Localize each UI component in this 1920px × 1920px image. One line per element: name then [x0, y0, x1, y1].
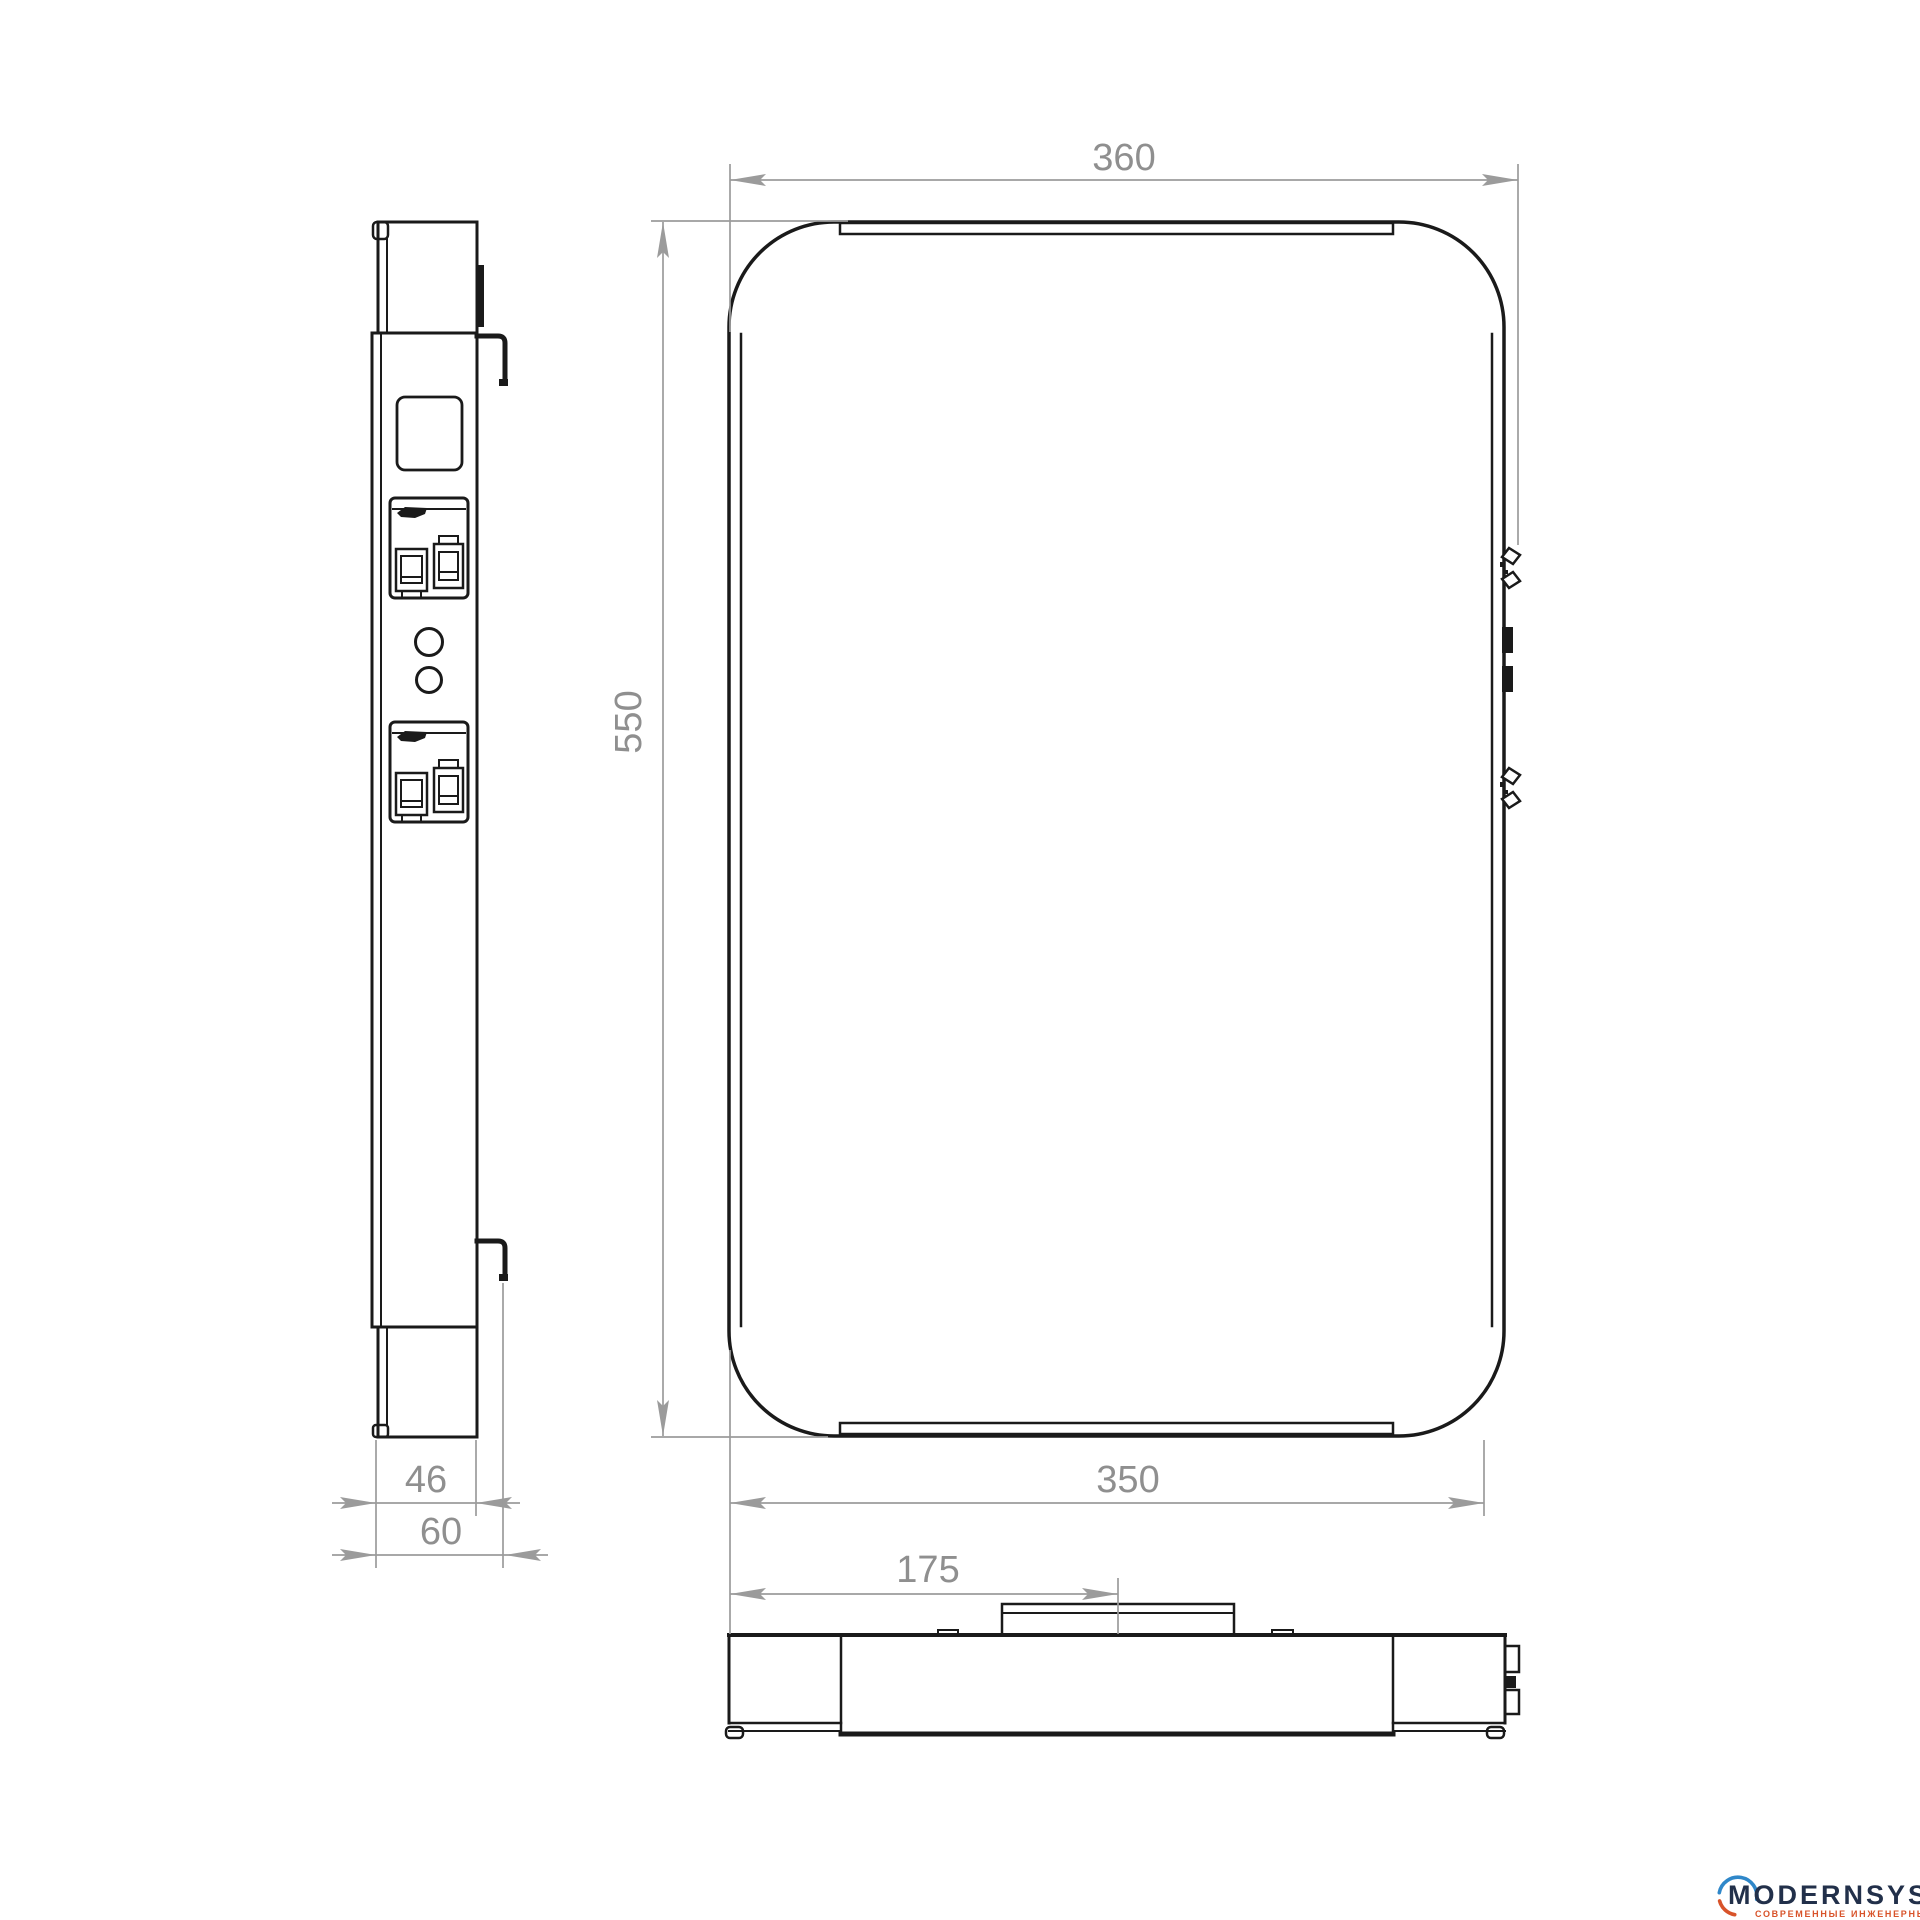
side-bottom-cap	[378, 1327, 477, 1437]
wall-hook-top	[477, 336, 508, 386]
dim-label-bottom-width: 350	[1096, 1459, 1159, 1501]
valve-knob-top	[416, 629, 443, 656]
side-top-cap	[378, 222, 477, 333]
front-view	[729, 222, 1520, 1436]
bottom-view-terminals	[1505, 1646, 1519, 1714]
dimension-175: 175	[730, 1549, 1118, 1634]
bottom-edge-strip	[840, 1423, 1393, 1434]
dim-label-center-offset: 175	[896, 1549, 959, 1591]
left-corner-nub	[726, 1727, 743, 1738]
bottom-view	[726, 1604, 1519, 1738]
panel-outline	[729, 222, 1504, 1436]
side-body	[372, 333, 477, 1327]
side-bottom-foot	[373, 1425, 388, 1437]
logo-tagline: СОВРЕМЕННЫЕ ИНЖЕНЕРНЫЕ СИСТЕМЫ	[1755, 1909, 1920, 1919]
modernsys-logo: MODERNSYS СОВРЕМЕННЫЕ ИНЖЕНЕРНЫЕ СИСТЕМЫ	[1714, 1870, 1920, 1920]
dim-label-height: 550	[608, 690, 650, 753]
right-corner-nub	[1487, 1727, 1504, 1738]
dim-label-total-depth: 60	[420, 1511, 462, 1553]
dimension-350: 350	[730, 1350, 1484, 1634]
side-view	[372, 222, 508, 1437]
dim-label-body-depth: 46	[405, 1459, 447, 1501]
dimension-360: 360	[730, 137, 1518, 545]
mount-tab	[477, 265, 484, 327]
logo-brand: MODERNSYS	[1728, 1880, 1920, 1911]
wall-hook-bottom	[477, 1241, 508, 1281]
side-clip-bottom	[1502, 666, 1513, 692]
control-box	[397, 397, 462, 470]
dim-label-top-width: 360	[1092, 137, 1155, 179]
terminal-block-bottom	[390, 722, 468, 822]
valve-knob-bottom	[417, 668, 442, 693]
terminal-block-top	[390, 498, 468, 598]
side-clip-top	[1502, 627, 1513, 653]
side-top-lip	[373, 222, 388, 239]
top-edge-strip	[840, 223, 1393, 234]
technical-drawing: 360 550 350 175 46 60	[0, 0, 1920, 1920]
